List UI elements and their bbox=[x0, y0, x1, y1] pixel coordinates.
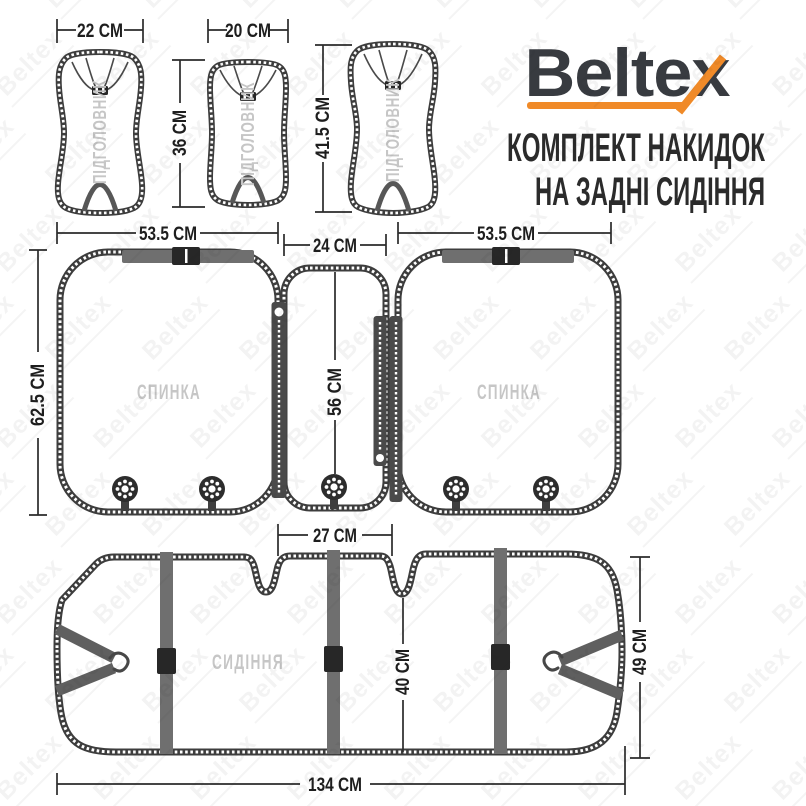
backrest-right-strap-webbing bbox=[442, 250, 494, 263]
buckle-slit bbox=[505, 249, 508, 263]
headrest-cover-2: ПІДГОЛОВНИК bbox=[210, 62, 286, 205]
seat-strap-1-buckle bbox=[157, 648, 176, 674]
dim-text: 36 CM bbox=[170, 110, 191, 156]
dim-backrest-height: 62.5 CM bbox=[28, 250, 49, 515]
diagram-canvas: Beltex КОМПЛЕКТ НАКИДОК НА ЗАДНІ СИДІННЯ… bbox=[0, 0, 806, 806]
brand-logo: Beltex bbox=[525, 35, 731, 112]
dim-text: 22 CM bbox=[77, 21, 123, 42]
zipper-right-pull bbox=[376, 454, 384, 462]
logo-underline bbox=[527, 102, 685, 109]
backrest-right-cover: СПИНКА bbox=[398, 247, 618, 512]
dim-text: 49 CM bbox=[630, 629, 651, 675]
dim-backrest-left-width: 53.5 CM bbox=[57, 222, 278, 245]
backrest-left-strap-webbing bbox=[198, 250, 254, 263]
seat-label: СИДІННЯ bbox=[212, 651, 284, 674]
headrest-cover-3: ПІДГОЛОВНИК bbox=[351, 44, 436, 213]
zipper-left-pull bbox=[275, 308, 284, 317]
dim-seat-side-height: 49 CM bbox=[630, 557, 651, 758]
dim-text: 24 CM bbox=[313, 236, 357, 257]
backrest-left-cover: СПИНКА bbox=[60, 247, 278, 512]
seat-strap-2-buckle bbox=[324, 646, 343, 672]
backrest-left-strap-webbing bbox=[122, 250, 174, 263]
buckle-slit bbox=[185, 249, 188, 263]
seat-strap-3-buckle bbox=[491, 644, 510, 670]
dim-headrest-1-width: 22 CM bbox=[57, 19, 143, 43]
backrest-left-label: СПИНКА bbox=[137, 381, 201, 404]
dim-text: 20 CM bbox=[225, 21, 271, 42]
headrest-cover-1: ПІДГОЛОВНИК bbox=[58, 52, 142, 213]
dim-text: 56 CM bbox=[325, 368, 346, 416]
dim-text: 134 CM bbox=[308, 775, 362, 796]
heading: КОМПЛЕКТ НАКИДОК НА ЗАДНІ СИДІННЯ bbox=[507, 126, 765, 214]
dim-text: 40 CM bbox=[393, 649, 414, 695]
backrest-right-strap-webbing bbox=[518, 250, 574, 263]
headrest-3-label: ПІДГОЛОВНИК bbox=[383, 78, 403, 182]
dim-text: 62.5 CM bbox=[28, 364, 49, 426]
dim-backrest-center-width: 24 CM bbox=[284, 234, 386, 257]
zipper-left bbox=[272, 302, 287, 498]
dim-backrest-right-width: 53.5 CM bbox=[398, 222, 611, 245]
dim-headrest-3-height: 41.5 CM bbox=[313, 45, 352, 212]
seat-cover: СИДІННЯ bbox=[57, 548, 622, 754]
backrest-right-label: СПИНКА bbox=[477, 381, 541, 404]
product-spec-sheet: Beltex КОМПЛЕКТ НАКИДОК НА ЗАДНІ СИДІННЯ… bbox=[0, 0, 806, 806]
dim-text: 53.5 CM bbox=[139, 224, 197, 245]
dim-headrest-2-height: 36 CM bbox=[170, 60, 205, 207]
heading-line-2: НА ЗАДНІ СИДІННЯ bbox=[535, 170, 765, 214]
heading-line-1: КОМПЛЕКТ НАКИДОК bbox=[507, 126, 765, 170]
dim-headrest-2-width: 20 CM bbox=[208, 19, 288, 43]
headrest-1-label: ПІДГОЛОВНИК bbox=[90, 80, 110, 184]
dim-text: 41.5 CM bbox=[313, 97, 334, 159]
dim-text: 53.5 CM bbox=[477, 224, 535, 245]
brand-logo-text: Beltex bbox=[525, 35, 731, 111]
headrest-2-label: ПІДГОЛОВНИК bbox=[238, 82, 258, 186]
dim-text: 27 CM bbox=[313, 526, 357, 547]
